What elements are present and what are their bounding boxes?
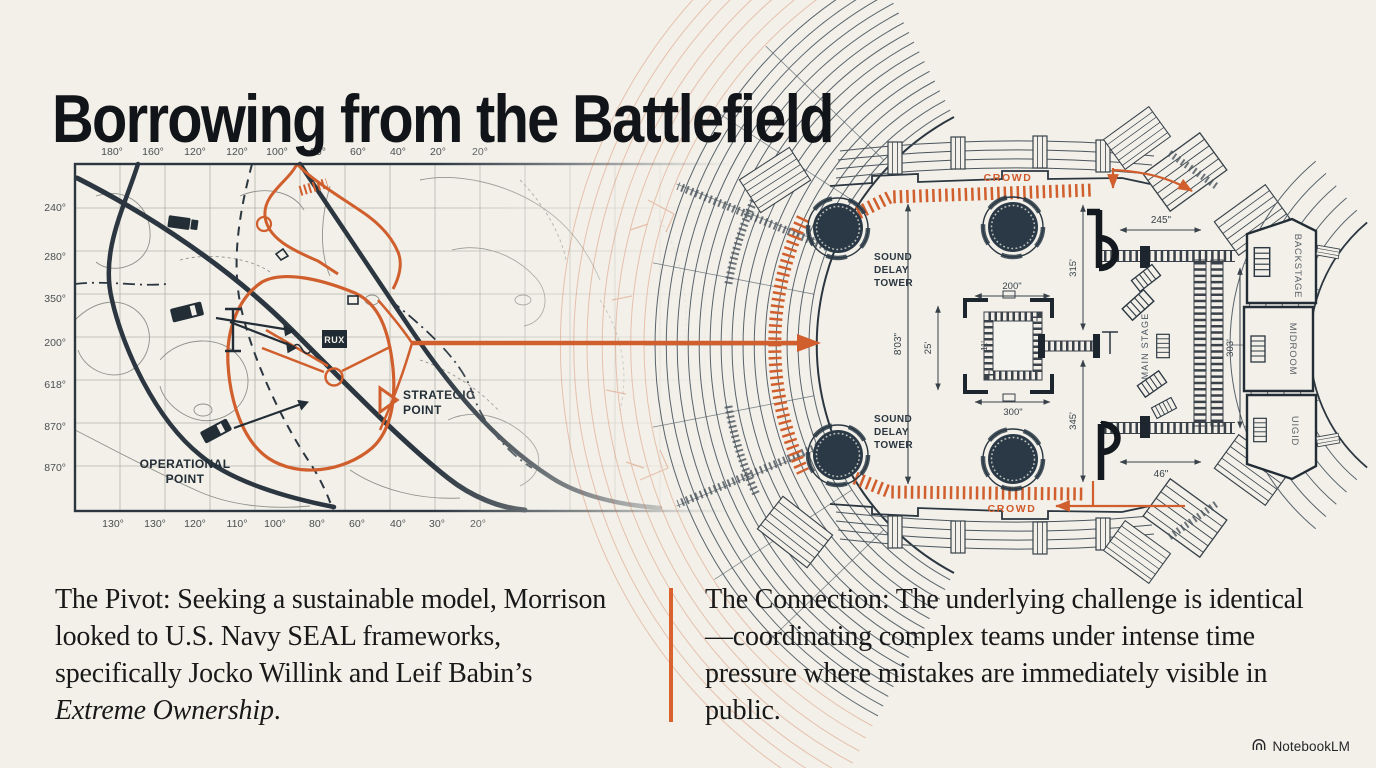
svg-text:110°: 110° xyxy=(227,518,248,530)
svg-text:100°: 100° xyxy=(264,518,286,530)
strategic-point-label: STRATEGIC xyxy=(403,388,475,402)
svg-text:240°: 240° xyxy=(44,202,66,214)
map-axis-left: 240°280° 350°200° 618°870° 870° xyxy=(44,202,66,474)
operational-point-label: OPERATIONAL xyxy=(140,457,231,471)
svg-text:DELAY: DELAY xyxy=(874,427,909,438)
svg-text:130°: 130° xyxy=(144,518,166,530)
b-stage: 200" 300" 25' 11' xyxy=(923,281,1052,418)
truck-icon xyxy=(167,215,198,231)
dim-left-upper: 315' xyxy=(1068,259,1079,277)
svg-text:SOUND: SOUND xyxy=(874,252,912,263)
page-title: Borrowing from the Battlefield xyxy=(52,80,833,158)
objective-marker: RUX xyxy=(322,330,347,348)
svg-text:SOUND: SOUND xyxy=(874,414,912,425)
room-label-uigid: UIGID xyxy=(1289,416,1300,446)
pivot-paragraph: The Pivot: Seeking a sustainable model, … xyxy=(55,581,620,729)
svg-text:280°: 280° xyxy=(44,251,66,263)
dim-bstage-top: 200" xyxy=(1002,281,1021,292)
map-axis-bottom: 130°130° 120°110° 100°80° 60°40° 30°20° xyxy=(102,518,486,530)
room-label-backstage: BACKSTAGE xyxy=(1292,234,1303,299)
brand-footer: NotebookLM xyxy=(1251,738,1350,754)
svg-text:20°: 20° xyxy=(470,518,486,530)
room-label-midroom: MIDROOM xyxy=(1287,323,1298,376)
svg-text:DELAY: DELAY xyxy=(874,265,909,276)
battle-map: RUX 180°160° 120°120° 100°80° 60°40° 20°… xyxy=(44,146,730,530)
dim-top-width: 245" xyxy=(1151,215,1172,226)
dim-bottom-width: 46" xyxy=(1154,469,1169,480)
pivot-tail: . xyxy=(274,695,281,726)
crowd-flow-lines xyxy=(1056,168,1192,506)
svg-text:618°: 618° xyxy=(44,379,66,391)
svg-text:80°: 80° xyxy=(309,518,325,530)
svg-text:870°: 870° xyxy=(44,462,66,474)
column-divider xyxy=(669,588,673,722)
tower-icon xyxy=(983,429,1043,489)
strategic-point-label2: POINT xyxy=(403,403,442,417)
marker-box-label: RUX xyxy=(324,335,345,345)
pivot-lead: The Pivot: xyxy=(55,584,170,615)
svg-text:30°: 30° xyxy=(429,518,445,530)
crowd-label-bottom: CROWD xyxy=(988,503,1037,515)
dim-stage-right: 303' xyxy=(1225,339,1236,357)
svg-text:130°: 130° xyxy=(102,518,124,530)
svg-text:200°: 200° xyxy=(44,337,66,349)
dim-arena-height: 8'03" xyxy=(893,332,904,355)
brand-label: NotebookLM xyxy=(1272,739,1350,754)
connection-paragraph: The Connection: The underlying challenge… xyxy=(705,581,1327,729)
svg-text:120°: 120° xyxy=(184,518,206,530)
stage-label: MAIN STAGE xyxy=(1140,313,1150,380)
svg-text:60°: 60° xyxy=(349,518,365,530)
dim-bstage-inner: 11' xyxy=(980,341,989,351)
svg-text:40°: 40° xyxy=(390,518,406,530)
van-icon xyxy=(200,418,233,444)
svg-text:870°: 870° xyxy=(44,421,66,433)
connection-lead: The Connection: xyxy=(705,584,889,615)
runway xyxy=(1038,334,1100,358)
operational-point-label2: POINT xyxy=(166,472,205,486)
tower-icon xyxy=(983,197,1043,257)
tower-icon xyxy=(808,425,868,485)
notebooklm-icon xyxy=(1251,738,1267,754)
pivot-book-title: Extreme Ownership xyxy=(55,695,274,726)
van-icon xyxy=(170,301,204,322)
tower-icon xyxy=(808,198,868,258)
dim-bstage-left: 25' xyxy=(923,342,934,355)
dim-left-lower: 345' xyxy=(1068,412,1079,430)
crowd-label-top: CROWD xyxy=(984,172,1033,184)
dim-bstage-bottom: 300" xyxy=(1003,407,1022,418)
svg-text:350°: 350° xyxy=(44,293,66,305)
